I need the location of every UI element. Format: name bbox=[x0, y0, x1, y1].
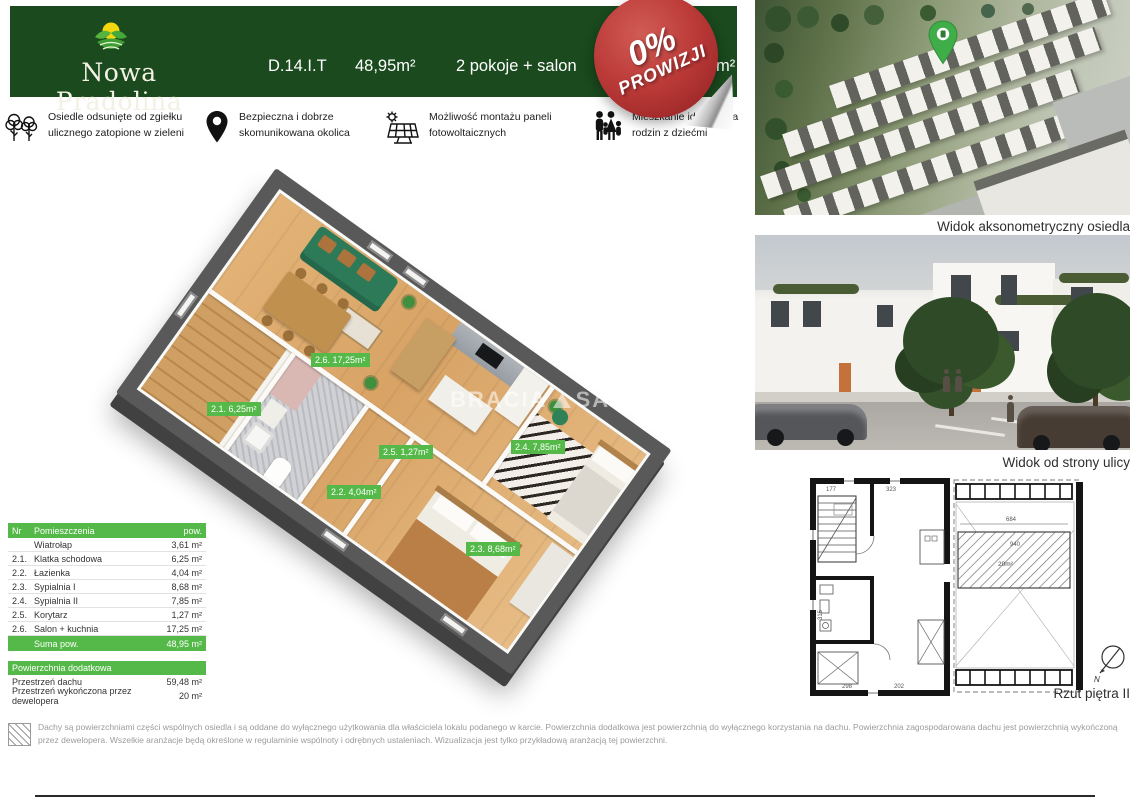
wardrobe bbox=[509, 542, 578, 621]
table-row: 2.2. Łazienka 4,04 m² bbox=[8, 566, 206, 580]
logo: Nowa Pradolina bbox=[24, 12, 214, 96]
room-label-2-1: 2.1. 6,25m² bbox=[207, 402, 261, 416]
svg-text:N: N bbox=[1094, 675, 1100, 684]
watermark-part1: BRACIA bbox=[450, 387, 548, 413]
aerial-image bbox=[755, 0, 1130, 215]
room-label-2-6: 2.6. 17,25m² bbox=[311, 353, 370, 367]
solar-panel-icon bbox=[383, 110, 419, 144]
car-wheel bbox=[837, 429, 854, 446]
rooms-table-header: Nr Pomieszczenia pow. bbox=[8, 523, 206, 538]
table-row: Wiatrołap 3,61 m² bbox=[8, 538, 206, 552]
feature-location: Bezpieczna i dobrze skomunikowana okolic… bbox=[205, 110, 389, 144]
disclaimer: Dachy są powierzchniami części wspólnych… bbox=[8, 721, 1126, 747]
table-row: 2.1. Klatka schodowa 6,25 m² bbox=[8, 552, 206, 566]
room-label-2-3: 2.3. 8,68m² bbox=[466, 542, 520, 556]
sidewalk bbox=[755, 392, 1130, 402]
unit-rooms: 2 pokoje + salon bbox=[456, 57, 577, 76]
logo-icon bbox=[90, 18, 132, 58]
table-row: 2.4. Sypialnia II 7,85 m² bbox=[8, 594, 206, 608]
unit-area: 48,95m² bbox=[355, 57, 416, 76]
location-pin-icon bbox=[205, 110, 229, 144]
col-name: Pomieszczenia bbox=[34, 526, 154, 536]
trees-texture bbox=[765, 6, 791, 32]
room-label-2-2: 2.2. 4,04m² bbox=[327, 485, 381, 499]
tree bbox=[903, 297, 999, 385]
feature-text: Możliwość montażu paneli fotowoltaicznyc… bbox=[429, 110, 569, 142]
svg-text:315: 315 bbox=[818, 609, 824, 620]
extra-table-title: Powierzchnia dodatkowa bbox=[8, 661, 206, 675]
svg-text:20m²: 20m² bbox=[998, 561, 1014, 568]
north-compass-icon: N bbox=[1092, 642, 1130, 686]
promo-stamp: 0% PROWIZJI bbox=[594, 0, 718, 118]
car-wheel bbox=[1033, 435, 1050, 450]
watermark-part2: SADUR bbox=[576, 387, 664, 413]
floorplan-floor bbox=[137, 189, 651, 654]
trees-icon bbox=[5, 110, 38, 146]
table-row: Przestrzeń wykończona przez dewelopera 2… bbox=[8, 689, 206, 703]
svg-text:323: 323 bbox=[886, 487, 897, 493]
disclaimer-text: Dachy są powierzchniami części wspólnych… bbox=[38, 721, 1126, 747]
col-nr: Nr bbox=[8, 526, 34, 536]
logo-text: Nowa Pradolina bbox=[24, 58, 214, 116]
sum-row: Suma pow. 48,95 m² bbox=[8, 636, 206, 651]
listing-card: { "header": { "logo_text": "Nowa Pradoli… bbox=[0, 0, 1130, 800]
map-pin-icon bbox=[927, 20, 959, 66]
hatch-legend-icon bbox=[8, 723, 31, 746]
unit-id: D.14.I.T bbox=[268, 57, 327, 76]
feature-greenery: Osiedle odsunięte od zgiełku ulicznego z… bbox=[5, 110, 200, 146]
window bbox=[803, 301, 821, 327]
caption-plan: Rzut piętra II bbox=[757, 686, 1130, 701]
feature-text: Bezpieczna i dobrze skomunikowana okolic… bbox=[239, 110, 389, 142]
tree-trunk bbox=[949, 390, 954, 416]
person bbox=[1007, 402, 1014, 422]
bottom-divider bbox=[35, 795, 1095, 797]
street-image bbox=[755, 235, 1130, 450]
watermark: BRACIA SADUR bbox=[450, 387, 664, 413]
window bbox=[877, 305, 893, 327]
tech-plan-drawing: 177 323 684 940 20m² 315 298 202 bbox=[800, 470, 1090, 702]
window bbox=[1001, 275, 1017, 305]
table-row: 2.6. Salon + kuchnia 17,25 m² bbox=[8, 622, 206, 636]
window bbox=[771, 301, 789, 327]
table-row: 2.5. Korytarz 1,27 m² bbox=[8, 608, 206, 622]
plant bbox=[400, 294, 417, 311]
svg-text:684: 684 bbox=[1006, 517, 1017, 523]
car-wheel bbox=[767, 429, 784, 446]
feature-solar: Możliwość montażu paneli fotowoltaicznyc… bbox=[383, 110, 569, 144]
watermark-logo-icon bbox=[553, 393, 571, 408]
feature-text: Osiedle odsunięte od zgiełku ulicznego z… bbox=[48, 110, 200, 142]
roof-hedge bbox=[1059, 273, 1129, 283]
svg-text:177: 177 bbox=[826, 487, 837, 493]
person bbox=[943, 376, 950, 392]
plant bbox=[362, 375, 379, 392]
rooms-table: Nr Pomieszczenia pow. Wiatrołap 3,61 m² … bbox=[8, 523, 206, 651]
col-area: pow. bbox=[154, 526, 206, 536]
table-row: 2.3. Sypialnia I 8,68 m² bbox=[8, 580, 206, 594]
person bbox=[955, 376, 962, 392]
extra-area-table: Powierzchnia dodatkowa Przestrzeń dachu … bbox=[8, 661, 206, 703]
room-label-2-4: 2.4. 7,85m² bbox=[511, 440, 565, 454]
room-label-2-5: 2.5. 1,27m² bbox=[379, 445, 433, 459]
caption-street: Widok od strony ulicy bbox=[755, 455, 1130, 470]
car-wheel bbox=[1103, 435, 1120, 450]
caption-aerial: Widok aksonometryczny osiedla bbox=[755, 219, 1130, 234]
svg-text:940: 940 bbox=[1010, 542, 1021, 548]
roof-hedge bbox=[773, 284, 859, 294]
